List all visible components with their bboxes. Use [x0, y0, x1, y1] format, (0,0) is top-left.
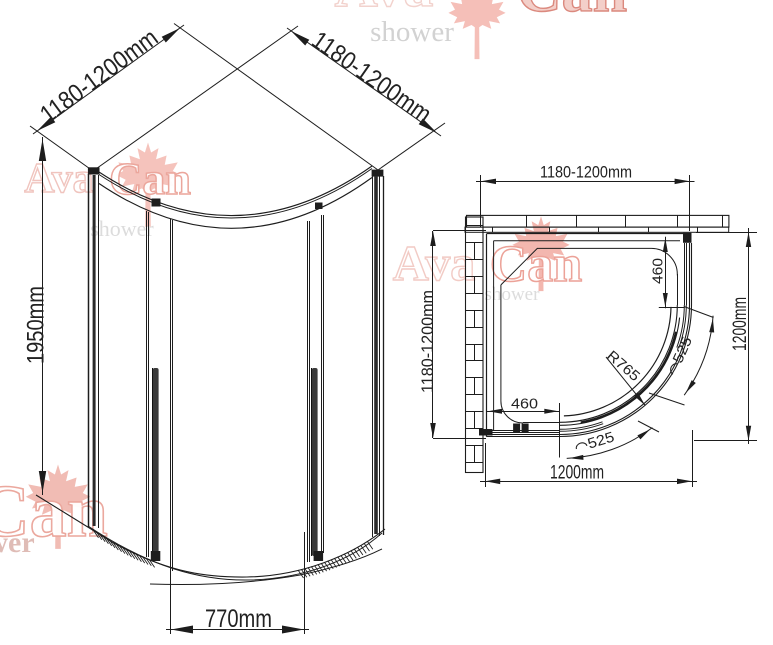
svg-text:1180-1200mm: 1180-1200mm: [540, 163, 632, 182]
svg-text:shower: shower: [90, 216, 154, 241]
svg-text:1180-1200mm: 1180-1200mm: [418, 290, 437, 393]
svg-text:1200mm: 1200mm: [550, 463, 604, 484]
svg-text:shower: shower: [0, 526, 35, 559]
svg-text:770mm: 770mm: [205, 605, 272, 633]
svg-text:Ava: Ava: [24, 156, 93, 202]
svg-text:1200mm: 1200mm: [730, 297, 751, 351]
svg-text:1950mm: 1950mm: [23, 286, 50, 364]
svg-text:Can: Can: [109, 153, 191, 204]
svg-text:Can: Can: [517, 0, 627, 25]
svg-text:460: 460: [651, 258, 667, 284]
svg-text:460: 460: [511, 397, 538, 413]
svg-text:shower: shower: [370, 16, 454, 48]
svg-text:shower: shower: [485, 284, 541, 305]
